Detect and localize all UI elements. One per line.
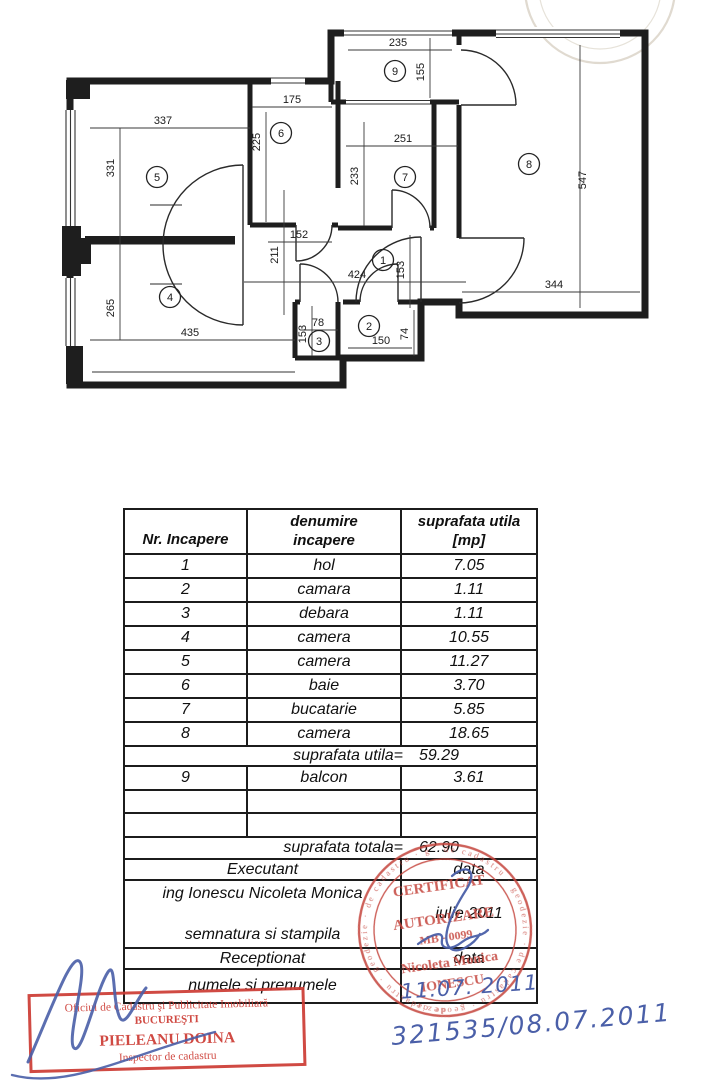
- svg-text:8: 8: [526, 159, 532, 171]
- empty-cell: [247, 813, 401, 837]
- receptionat-name-label: numele si prenumele: [124, 969, 401, 1003]
- dim-room3-height: 153: [297, 325, 309, 343]
- svg-text:3: 3: [316, 336, 322, 348]
- room-nr: 3: [124, 602, 247, 626]
- executant-date: iulie 2011: [401, 880, 537, 948]
- room-area: 5.85: [401, 698, 537, 722]
- corridor-beam: [85, 236, 235, 244]
- dim-room8-width: 344: [545, 279, 563, 291]
- room-nr: 1: [124, 554, 247, 578]
- table-row: 9balcon3.61: [124, 766, 537, 790]
- svg-text:7: 7: [402, 172, 408, 184]
- empty-cell: [124, 813, 247, 837]
- executant-row: Executant data: [124, 859, 537, 880]
- total-label: suprafata totala=: [125, 839, 403, 857]
- handwritten-registration-number: 321535/08.07.2011: [390, 998, 672, 1051]
- room-label-6: 6: [271, 123, 292, 144]
- subtotal-value: 59.29: [419, 747, 459, 765]
- room-name: debara: [247, 602, 401, 626]
- room-label-5: 5: [147, 167, 168, 188]
- table-row: 6baie3.70: [124, 674, 537, 698]
- scanned-cadastral-sheet: 337 331 175 225 235 155 251 233 547 344 …: [0, 0, 716, 1080]
- room-label-7: 7: [395, 167, 416, 188]
- svg-text:9: 9: [392, 66, 398, 78]
- empty-cell: [401, 790, 537, 813]
- receptionat-name-row: numele si prenumele: [124, 969, 537, 1003]
- room-area: 7.05: [401, 554, 537, 578]
- room-area: 10.55: [401, 626, 537, 650]
- room-area: 3.70: [401, 674, 537, 698]
- svg-text:2: 2: [366, 321, 372, 333]
- room-name: hol: [247, 554, 401, 578]
- room-nr: 8: [124, 722, 247, 746]
- table-row: 4camera10.55: [124, 626, 537, 650]
- svg-text:1: 1: [380, 255, 386, 267]
- dim-room6-width: 175: [283, 94, 301, 106]
- room-nr: 9: [124, 766, 247, 790]
- room-label-9: 9: [385, 61, 406, 82]
- total-value: 62.90: [419, 839, 459, 857]
- table-row: 5camera11.27: [124, 650, 537, 674]
- room-label-2: 2: [359, 316, 380, 337]
- dim-room7-width: 251: [394, 133, 412, 145]
- dim-corridor-width: 152: [290, 229, 308, 241]
- empty-row: [124, 790, 537, 813]
- dim-room5-height: 331: [105, 159, 117, 177]
- dim-balcony-height: 155: [415, 63, 427, 81]
- dim-room5-width: 337: [154, 115, 172, 127]
- room-name: balcon: [247, 766, 401, 790]
- svg-text:5: 5: [154, 172, 160, 184]
- svg-text:4: 4: [167, 292, 173, 304]
- room-nr: 4: [124, 626, 247, 650]
- receptionat-row: Receptionat data: [124, 948, 537, 969]
- room-area: 1.11: [401, 578, 537, 602]
- svg-text:6: 6: [278, 128, 284, 140]
- room-area: 18.65: [401, 722, 537, 746]
- subtotal-row: suprafata utila=59.29: [124, 746, 537, 766]
- room-name: camera: [247, 650, 401, 674]
- table-row: 8camera18.65: [124, 722, 537, 746]
- table-row: 1hol7.05: [124, 554, 537, 578]
- room-name: baie: [247, 674, 401, 698]
- subtotal-cell: suprafata utila=59.29: [124, 746, 537, 766]
- dim-room4-width: 435: [181, 327, 199, 339]
- room-area: 11.27: [401, 650, 537, 674]
- dim-room4-height: 265: [105, 299, 117, 317]
- table-header-row: Nr. Incapere denumire incapere suprafata…: [124, 509, 537, 554]
- header-denumire: denumire incapere: [247, 509, 401, 554]
- table-row: 7bucatarie5.85: [124, 698, 537, 722]
- exterior-walls: [70, 33, 645, 385]
- dim-balcony-width: 235: [389, 37, 407, 49]
- executant-name-cell: ing Ionescu Nicoleta Monica semnatura si…: [124, 880, 401, 948]
- table-row: 3debara1.11: [124, 602, 537, 626]
- room-label-8: 8: [519, 154, 540, 175]
- dim-hall-width: 424: [348, 269, 366, 281]
- dimension-lines: [90, 38, 640, 356]
- receptionat-date-cell: [401, 969, 537, 1003]
- receptionat-data-label: data: [401, 948, 537, 969]
- dim-room2-width: 150: [372, 335, 390, 347]
- dim-room7-height: 233: [349, 167, 361, 185]
- dim-room3-width: 78: [312, 317, 324, 329]
- empty-cell: [124, 790, 247, 813]
- room-nr: 5: [124, 650, 247, 674]
- executant-label: Executant: [124, 859, 401, 880]
- room-name: camara: [247, 578, 401, 602]
- room-name: bucatarie: [247, 698, 401, 722]
- empty-row: [124, 813, 537, 837]
- executant-signature-row: ing Ionescu Nicoleta Monica semnatura si…: [124, 880, 537, 948]
- executant-data-label: data: [401, 859, 537, 880]
- receptionat-label: Receptionat: [124, 948, 401, 969]
- dim-room6-height: 225: [251, 133, 263, 151]
- rect-stamp-line2: BUCUREŞTI: [134, 1013, 198, 1027]
- room-name: camera: [247, 722, 401, 746]
- empty-cell: [247, 790, 401, 813]
- floor-plan: 337 331 175 225 235 155 251 233 547 344 …: [0, 0, 716, 470]
- header-suprafata: suprafata utila [mp]: [401, 509, 537, 554]
- room-name: camera: [247, 626, 401, 650]
- room-nr: 6: [124, 674, 247, 698]
- dim-hall-height: 153: [395, 261, 407, 279]
- header-nr: Nr. Incapere: [124, 509, 247, 554]
- dim-room2-height: 74: [399, 328, 411, 340]
- subtotal-label: suprafata utila=: [125, 747, 403, 765]
- total-row: suprafata totala=62.90: [124, 837, 537, 859]
- room-area: 3.61: [401, 766, 537, 790]
- dim-room8-height: 547: [577, 171, 589, 189]
- room-nr: 7: [124, 698, 247, 722]
- empty-cell: [401, 813, 537, 837]
- room-nr: 2: [124, 578, 247, 602]
- room-area: 1.11: [401, 602, 537, 626]
- total-cell: suprafata totala=62.90: [124, 837, 537, 859]
- area-table: Nr. Incapere denumire incapere suprafata…: [123, 508, 538, 1004]
- rect-stamp-line3: PIELEANU DOINA: [99, 1029, 236, 1050]
- rect-stamp-line4: Inspector de cadastru: [119, 1050, 217, 1065]
- executant-name: ing Ionescu Nicoleta Monica: [125, 885, 400, 903]
- dim-corridor-length: 211: [269, 246, 281, 264]
- room-label-4: 4: [160, 287, 181, 308]
- signature-label: semnatura si stampila: [125, 926, 400, 944]
- table-row: 2camara1.11: [124, 578, 537, 602]
